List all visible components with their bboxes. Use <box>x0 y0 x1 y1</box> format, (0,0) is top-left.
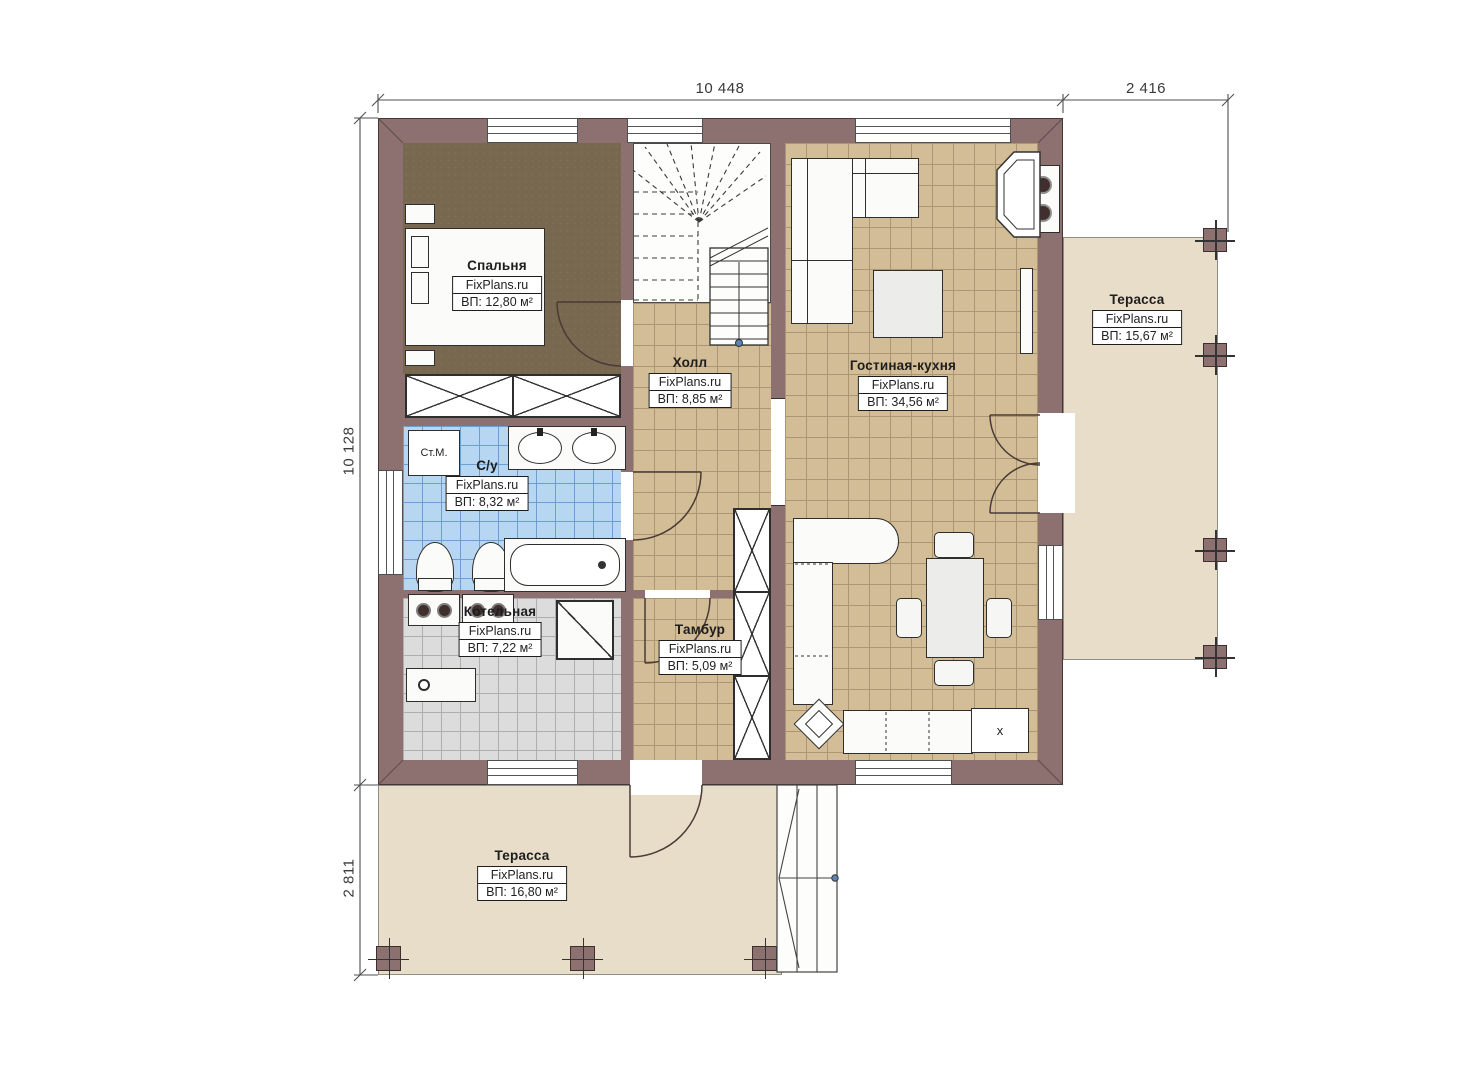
window <box>487 760 578 785</box>
terrace-post <box>1203 645 1227 669</box>
sink <box>572 432 616 464</box>
brand-label: FixPlans.ru <box>478 867 566 884</box>
bathtub-drain <box>598 561 606 569</box>
terrace-post <box>1203 228 1227 252</box>
brand-label: FixPlans.ru <box>453 277 541 294</box>
door-opening-vestibule <box>645 590 710 598</box>
dimension-left-main: 10 128 <box>341 427 358 476</box>
boiler-knob <box>416 603 431 618</box>
room-name: Холл <box>649 355 732 370</box>
room-name: Терасса <box>477 848 567 863</box>
room-name: Тамбур <box>659 622 742 637</box>
area-label: ВП: 8,32 м² <box>447 494 528 510</box>
floor-plan-canvas: Ст.М. <box>0 0 1473 1080</box>
dimension-top-main: 10 448 <box>696 80 745 97</box>
brand-label: FixPlans.ru <box>859 377 947 394</box>
room-label-box: FixPlans.ru ВП: 34,56 м² <box>858 376 948 411</box>
sink-tap <box>591 428 597 436</box>
room-label-box: FixPlans.ru ВП: 8,85 м² <box>649 373 732 408</box>
room-label-box: FixPlans.ru ВП: 8,32 м² <box>446 476 529 511</box>
brand-label: FixPlans.ru <box>460 623 541 640</box>
window <box>487 118 578 143</box>
bidet-tank <box>474 578 508 591</box>
terrace-post <box>376 946 401 971</box>
area-label: ВП: 5,09 м² <box>660 658 741 674</box>
room-label-bedroom: Спальня FixPlans.ru ВП: 12,80 м² <box>452 258 542 311</box>
area-label: ВП: 8,85 м² <box>650 391 731 407</box>
washing-machine-label: Ст.М. <box>420 447 447 459</box>
dining-chair <box>986 598 1012 638</box>
cased-opening-hall-living <box>771 398 785 506</box>
area-label: ВП: 7,22 м² <box>460 640 541 656</box>
area-label: ВП: 16,80 м² <box>478 884 566 900</box>
terrace-post <box>1203 343 1227 367</box>
stairwell-floor <box>633 143 771 303</box>
area-label: ВП: 12,80 м² <box>453 294 541 310</box>
room-label-boiler: Котельная FixPlans.ru ВП: 7,22 м² <box>459 604 542 657</box>
window <box>627 118 703 143</box>
window <box>855 760 952 785</box>
door-opening-bathroom <box>621 472 633 540</box>
brand-label: FixPlans.ru <box>650 374 731 391</box>
bed-pillow <box>411 272 429 304</box>
area-label: ВП: 15,67 м² <box>1093 328 1181 344</box>
room-name: Спальня <box>452 258 542 273</box>
fridge: x <box>971 708 1029 753</box>
wardrobe-section <box>513 375 620 417</box>
dimension-left-terrace: 2 811 <box>341 859 358 898</box>
exterior-steps <box>777 785 838 972</box>
terrace-post <box>1203 538 1227 562</box>
window <box>1038 545 1063 620</box>
boiler-unit <box>408 594 460 626</box>
bed-pillow <box>411 236 429 268</box>
fridge-mark: x <box>997 723 1004 738</box>
wardrobe-section <box>406 375 513 417</box>
entrance-door-opening <box>630 760 702 785</box>
area-label: ВП: 34,56 м² <box>859 394 947 410</box>
coffee-table <box>873 270 943 338</box>
room-label-box: FixPlans.ru ВП: 7,22 м² <box>459 622 542 657</box>
terrace-door-opening <box>1038 413 1063 513</box>
nightstand <box>405 204 435 224</box>
toilet-tank <box>418 578 452 591</box>
boiler-knob <box>437 603 452 618</box>
flue-pipe <box>1034 176 1052 194</box>
dimension-top-terrace: 2 416 <box>1126 80 1166 97</box>
wardrobe <box>405 374 621 418</box>
terrace-door-threshold <box>1063 413 1075 513</box>
dining-chair <box>934 532 974 558</box>
window <box>855 118 1011 143</box>
brand-label: FixPlans.ru <box>1093 311 1181 328</box>
room-name: Котельная <box>459 604 542 619</box>
closet-section <box>734 509 770 592</box>
dining-chair <box>934 660 974 686</box>
room-label-terrace-right: Терасса FixPlans.ru ВП: 15,67 м² <box>1092 292 1182 345</box>
room-name: Терасса <box>1092 292 1182 307</box>
room-label-vestibule: Тамбур FixPlans.ru ВП: 5,09 м² <box>659 622 742 675</box>
kitchen-peninsula <box>793 518 899 564</box>
brand-label: FixPlans.ru <box>660 641 741 658</box>
flue-pipe <box>1034 204 1052 222</box>
nightstand <box>405 350 435 366</box>
water-heater <box>556 600 614 660</box>
room-label-bathroom: С/у FixPlans.ru ВП: 8,32 м² <box>446 458 529 511</box>
dining-chair <box>896 598 922 638</box>
terrace-post <box>570 946 595 971</box>
room-label-hall: Холл FixPlans.ru ВП: 8,85 м² <box>649 355 732 408</box>
dining-table <box>926 558 984 658</box>
terrace-post <box>752 946 777 971</box>
fireplace-flue-unit <box>1026 165 1060 233</box>
room-label-box: FixPlans.ru ВП: 15,67 м² <box>1092 310 1182 345</box>
room-name: Гостиная-кухня <box>850 358 956 373</box>
room-label-box: FixPlans.ru ВП: 12,80 м² <box>452 276 542 311</box>
tv <box>1020 268 1033 354</box>
window <box>378 470 403 575</box>
door-opening-bedroom <box>621 300 633 366</box>
sink-tap <box>537 428 543 436</box>
sofa-vertical <box>791 158 853 324</box>
room-label-box: FixPlans.ru ВП: 16,80 м² <box>477 866 567 901</box>
room-label-living-kitchen: Гостиная-кухня FixPlans.ru ВП: 34,56 м² <box>850 358 956 411</box>
room-label-terrace-bottom: Терасса FixPlans.ru ВП: 16,80 м² <box>477 848 567 901</box>
brand-label: FixPlans.ru <box>447 477 528 494</box>
room-name: С/у <box>446 458 529 473</box>
utility-unit-dial <box>418 679 430 691</box>
utility-unit <box>406 668 476 702</box>
entrance-threshold <box>630 785 702 795</box>
room-label-box: FixPlans.ru ВП: 5,09 м² <box>659 640 742 675</box>
interior-wall <box>403 418 633 426</box>
closet-section <box>734 676 770 759</box>
kitchen-counter-bottom <box>843 710 973 754</box>
kitchen-counter-left <box>793 562 833 705</box>
